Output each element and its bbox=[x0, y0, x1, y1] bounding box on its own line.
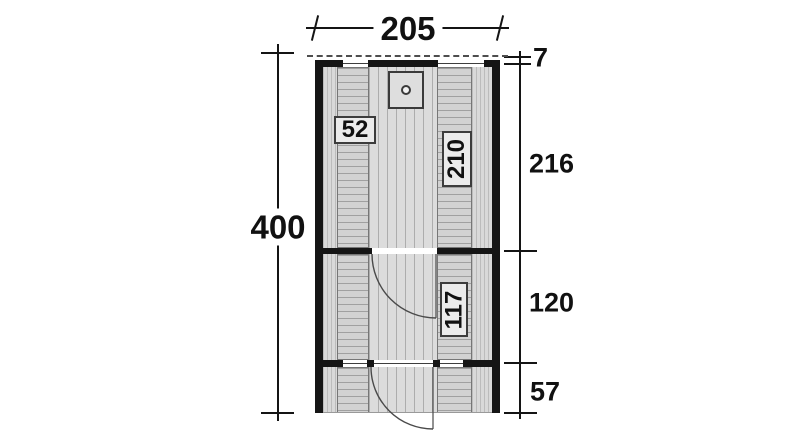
terrace-lining-right bbox=[472, 367, 492, 413]
window-back-right bbox=[438, 60, 484, 67]
dim-right-value-sauna-room: 216 bbox=[527, 150, 576, 179]
wall-front-post-right bbox=[433, 360, 440, 367]
label-left-bench: 52 bbox=[334, 116, 376, 144]
roof-overhang-dashed-line bbox=[307, 55, 508, 57]
label-front-bench: 117 bbox=[440, 282, 468, 337]
label-right-bench: 210 bbox=[442, 131, 472, 187]
window-front-right bbox=[440, 360, 463, 367]
dim-right-tick-bottom bbox=[504, 412, 537, 414]
terrace-deck-left bbox=[337, 367, 369, 413]
terrace-lining-left bbox=[323, 367, 337, 413]
window-front-left bbox=[343, 360, 367, 367]
dim-width-value: 205 bbox=[373, 10, 442, 47]
wall-back-segment-right bbox=[484, 60, 500, 67]
dim-height-value: 400 bbox=[243, 209, 312, 246]
wall-back-segment-left bbox=[315, 60, 343, 67]
front-door-threshold bbox=[374, 360, 433, 367]
wall-inner-segment-left bbox=[315, 248, 372, 254]
dim-right-tick-inner-wall bbox=[504, 250, 537, 252]
terrace-floor bbox=[369, 367, 437, 413]
dim-right-value-terrace: 57 bbox=[528, 378, 562, 407]
terrace-deck-right bbox=[437, 367, 472, 413]
label-left-bench-value: 52 bbox=[342, 118, 369, 142]
dim-height-tick-top bbox=[261, 52, 294, 54]
window-back-left bbox=[343, 60, 368, 67]
front-room-wall-lining-right bbox=[472, 254, 492, 360]
floor-plan-canvas: 205 400 7 216 120 57 bbox=[0, 0, 790, 444]
front-room-bench-left bbox=[337, 254, 369, 360]
label-front-bench-value: 117 bbox=[442, 290, 466, 329]
front-room-wall-lining-left bbox=[323, 254, 337, 360]
wall-back-segment-center bbox=[368, 60, 438, 67]
wall-front-segment-right bbox=[463, 360, 500, 367]
stove-vent-icon bbox=[401, 85, 411, 95]
sauna-bench-left bbox=[337, 67, 369, 248]
wall-inner-segment-right bbox=[437, 248, 500, 254]
front-room-floor bbox=[369, 254, 437, 360]
label-right-bench-value: 210 bbox=[445, 139, 469, 179]
dim-right-value-overhang: 7 bbox=[531, 44, 550, 73]
wall-front-segment-left bbox=[315, 360, 343, 367]
wall-front-post-left bbox=[367, 360, 374, 367]
sauna-wall-lining-right bbox=[472, 67, 492, 248]
terrace-front-edge bbox=[323, 412, 492, 413]
sauna-wall-lining-left bbox=[323, 67, 337, 248]
dim-right-tick-front-wall bbox=[504, 362, 537, 364]
dim-right-value-front-room: 120 bbox=[527, 289, 576, 318]
dim-height-tick-bottom bbox=[261, 412, 294, 414]
